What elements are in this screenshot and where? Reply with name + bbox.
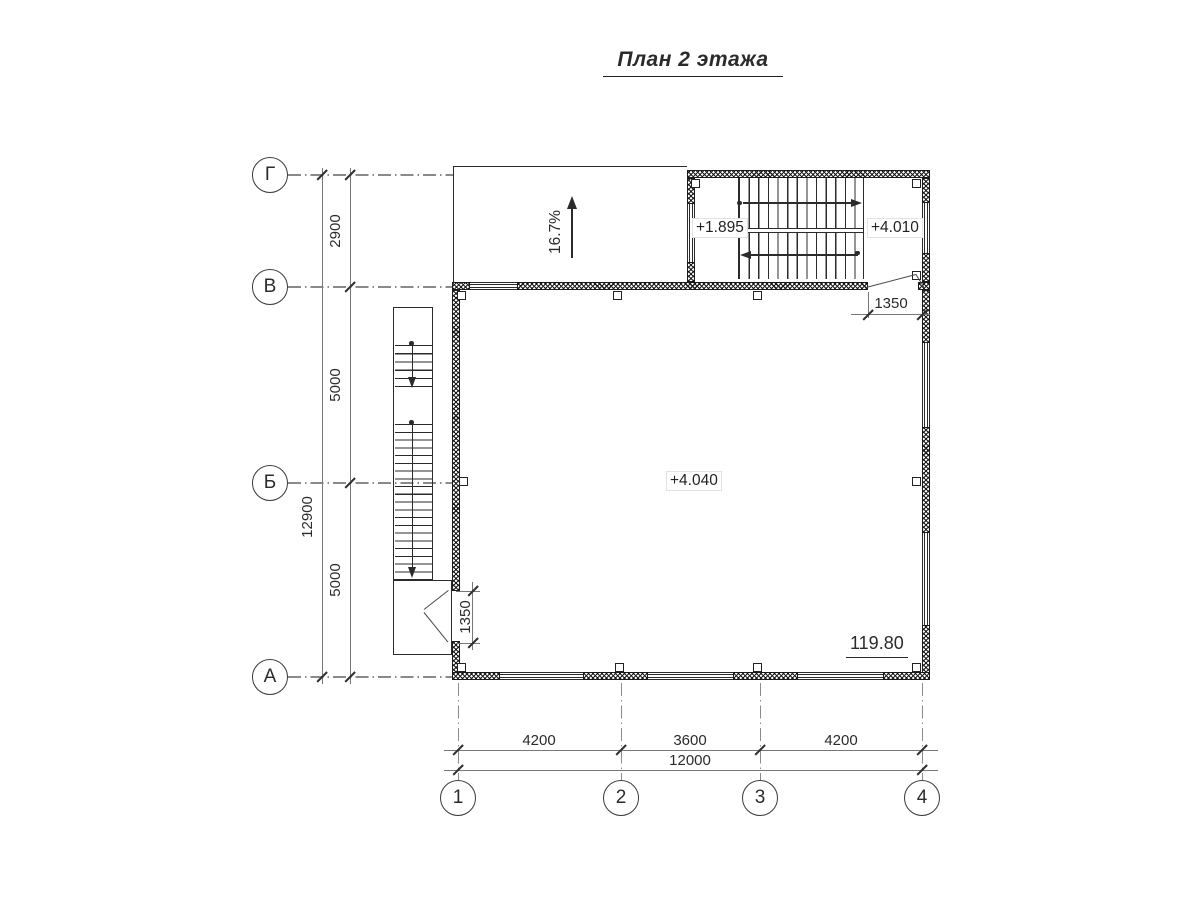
dim-text-bottom-total: 12000 [655,753,725,769]
axis-line-1 [458,683,459,780]
dim-extension-line [456,643,480,644]
axis-bubble-3: 3 [742,780,778,816]
column-stub [615,663,624,672]
window [648,672,733,680]
column-stub [912,179,921,188]
wall-segment [583,672,648,680]
ramp-slope-label: 16.7% [548,197,564,267]
dim-line-stair-door [851,314,930,315]
column-stub [691,179,700,188]
window [922,203,930,253]
axis-label-a: А [264,666,277,688]
stair-arrowhead-left-icon [740,251,751,259]
ramp-arrowhead-icon [567,196,577,209]
stair-arrowhead-down-icon [408,377,416,388]
axis-bubble-v: В [252,269,288,305]
stair-right-edge [863,178,864,279]
column-stub [613,291,622,300]
wall-segment [922,427,930,533]
axis-label-2: 2 [616,787,627,809]
stair-down-arrow [412,345,413,378]
dim-line-bottom-total [444,770,938,771]
window [798,672,883,680]
dim-text-left-1: 2900 [328,201,344,261]
wall-segment [733,672,798,680]
axis-label-b: Б [264,472,276,494]
axis-bubble-2: 2 [603,780,639,816]
stair-path-start-dot [737,201,742,206]
axis-line-g [288,174,453,175]
wall-segment [517,282,868,290]
axis-label-1: 1 [453,787,464,809]
axis-label-g: Г [265,164,275,186]
dim-text-left-3: 5000 [328,550,344,610]
axis-label-4: 4 [917,787,928,809]
ramp-left-edge [453,166,454,283]
wall-segment [922,178,930,203]
column-stub [912,663,921,672]
dim-text-bottom-1: 4200 [504,733,574,749]
axis-line-v [288,286,452,287]
stair-arrowhead-right-icon [851,199,862,207]
stair-mid-landing-line [738,228,863,233]
stair-down-arrow [751,254,858,255]
wall-segment [922,290,930,343]
axis-line-a [288,676,452,677]
wall-segment [452,672,500,680]
wall-segment [883,672,930,680]
axis-line-2 [621,683,622,780]
axis-line-4 [922,683,923,780]
level-label-landing-top: +4.010 [867,218,923,238]
stair-arrowhead-down-icon [408,567,416,578]
elevation-mark: 119.80 [846,633,908,658]
dim-text-left-total: 12900 [300,477,316,557]
dim-line-left-segments [350,168,351,684]
column-stub [753,291,762,300]
stair-down-arrow [412,424,413,568]
axis-bubble-b: Б [252,465,288,501]
axis-bubble-g: Г [252,157,288,193]
ramp-direction-arrow [571,208,573,258]
column-stub [912,477,921,486]
stair-up-arrow [743,202,853,203]
door-swing [866,274,917,288]
column-stub [457,291,466,300]
window [922,533,930,625]
axis-line-3 [760,683,761,780]
axis-bubble-a: А [252,659,288,695]
wall-segment [687,262,695,282]
axis-bubble-4: 4 [904,780,940,816]
floor-plan-sheet: План 2 этажа Г В Б А 1 2 3 4 2900 5000 5… [0,0,1200,900]
column-stub [459,477,468,486]
stair-treads-lower-flight [395,424,432,579]
dim-line-bottom-segments [444,750,938,751]
wall-segment [452,282,470,290]
axis-bubble-1: 1 [440,780,476,816]
stair-landing-outline [393,580,452,655]
axis-label-v: В [264,276,277,298]
axis-label-3: 3 [755,787,766,809]
level-label-landing-mid: +1.895 [692,218,748,238]
wall-segment [922,253,930,282]
ramp-top-edge [453,166,687,167]
dim-text-left-2: 5000 [328,355,344,415]
window [500,672,583,680]
wall-segment [687,170,930,178]
window [470,282,517,290]
window [922,343,930,427]
dim-text-stair-door: 1350 [866,296,916,312]
dim-line-left-total [322,168,323,684]
column-stub [457,663,466,672]
wall-segment [452,290,460,591]
dim-text-side-door: 1350 [458,592,474,642]
column-stub [753,663,762,672]
drawing-title: План 2 этажа [603,48,783,77]
dim-text-bottom-3: 4200 [806,733,876,749]
dim-text-bottom-2: 3600 [655,733,725,749]
level-label-floor: +4.040 [666,471,722,491]
